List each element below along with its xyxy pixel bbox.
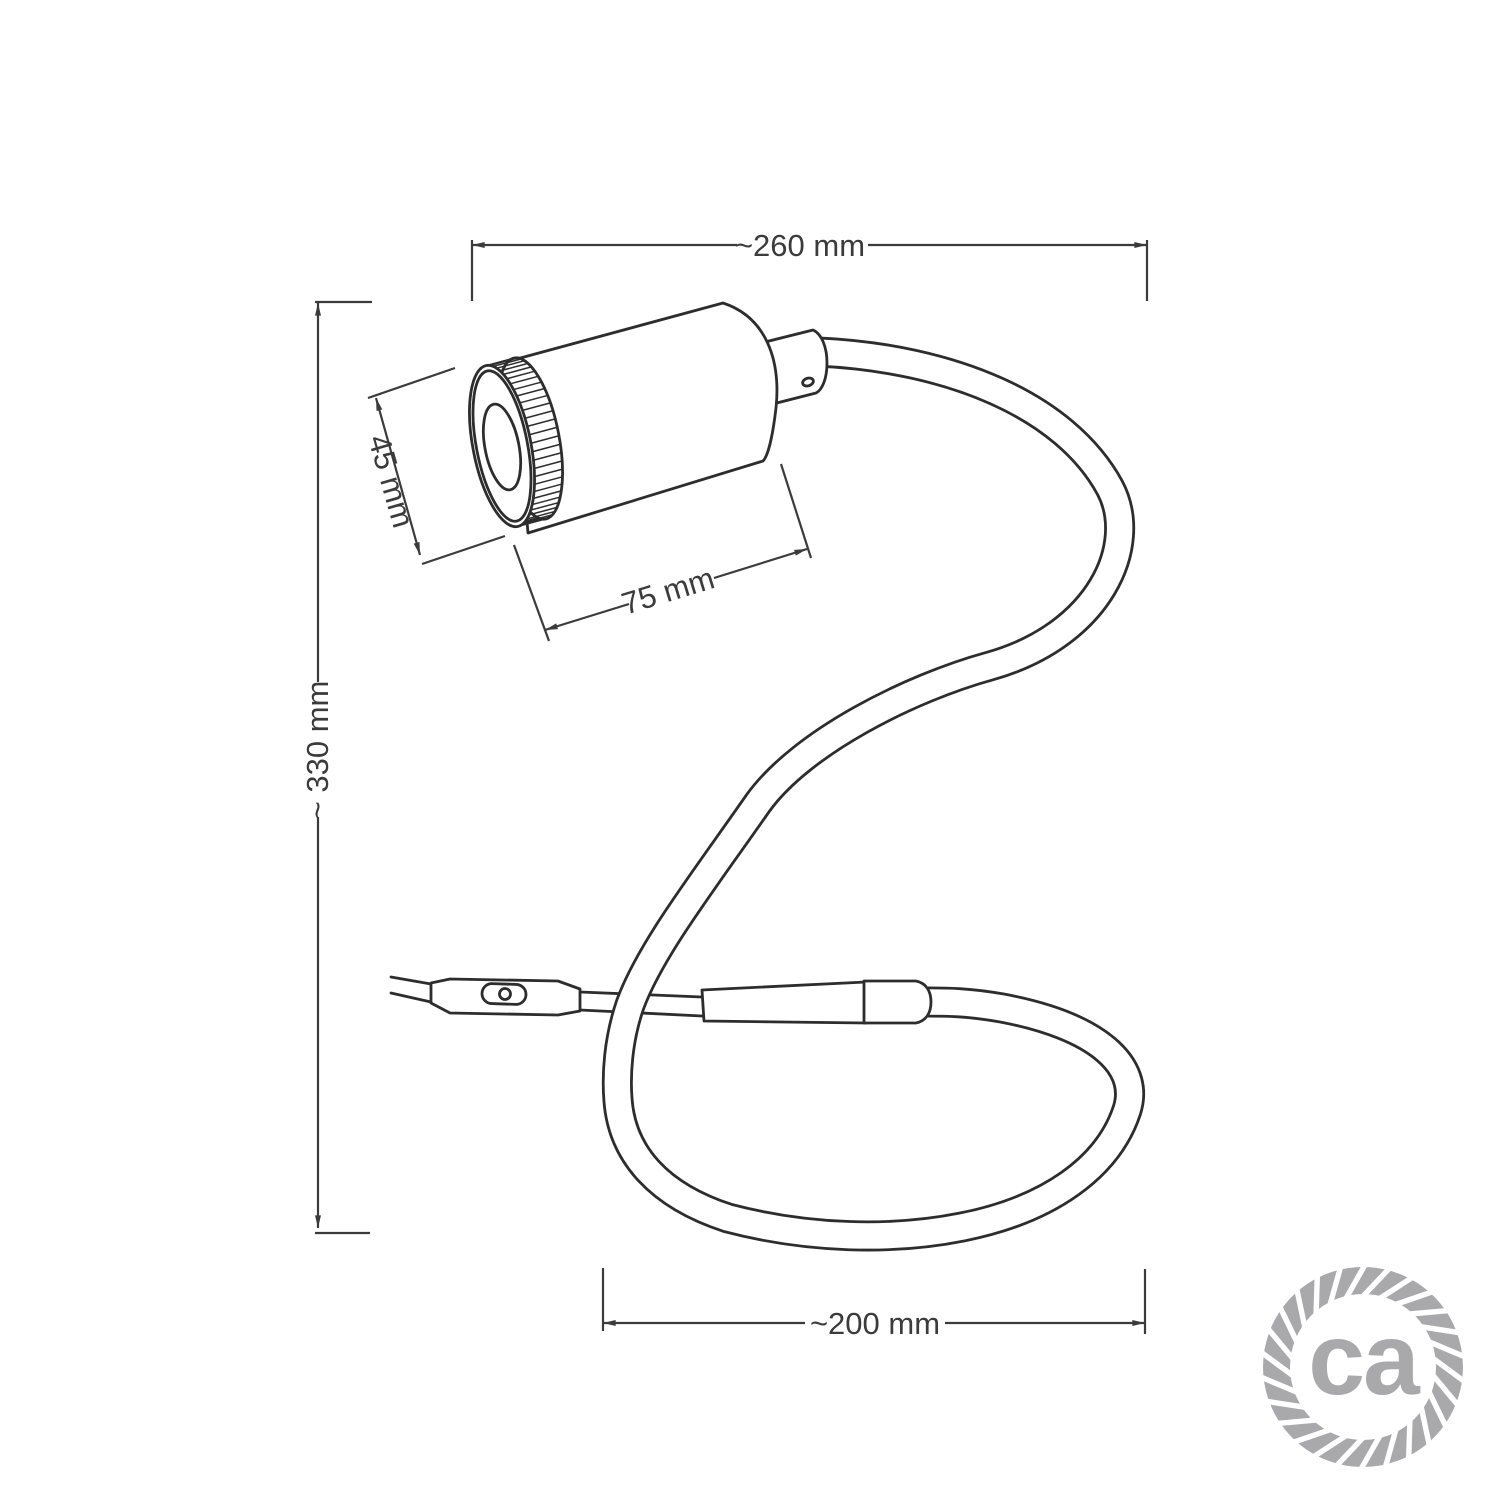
diagram-canvas: ~260 mm ~ 330 mm 45 mm 75 mm ~200 mm ca	[0, 0, 1500, 1500]
lamp-dimension-drawing: ~260 mm ~ 330 mm 45 mm 75 mm ~200 mm ca	[0, 0, 1500, 1500]
dim-label-head-diameter: 45 mm	[361, 431, 421, 532]
dim-label-bottom-width: ~200 mm	[810, 1306, 940, 1341]
ferrule	[864, 981, 931, 1023]
dimension-bottom-width: ~200 mm	[603, 1268, 1145, 1341]
cable-sleeve	[702, 982, 866, 1023]
gooseneck-tube	[617, 352, 1129, 1236]
dimension-left-height: ~ 330 mm	[300, 302, 372, 1233]
dimension-top-width: ~260 mm	[472, 228, 1147, 301]
inline-switch	[431, 979, 580, 1015]
extension-line	[514, 545, 549, 641]
dim-label-left-height: ~ 330 mm	[300, 681, 335, 820]
dim-label-head-length: 75 mm	[618, 560, 719, 621]
brand-logo: ca	[1257, 1261, 1468, 1473]
extension-line	[422, 536, 505, 564]
brand-logo-text: ca	[1308, 1302, 1421, 1416]
extension-line	[781, 464, 811, 558]
dim-label-top-width: ~260 mm	[735, 228, 865, 263]
extension-line	[368, 368, 455, 398]
